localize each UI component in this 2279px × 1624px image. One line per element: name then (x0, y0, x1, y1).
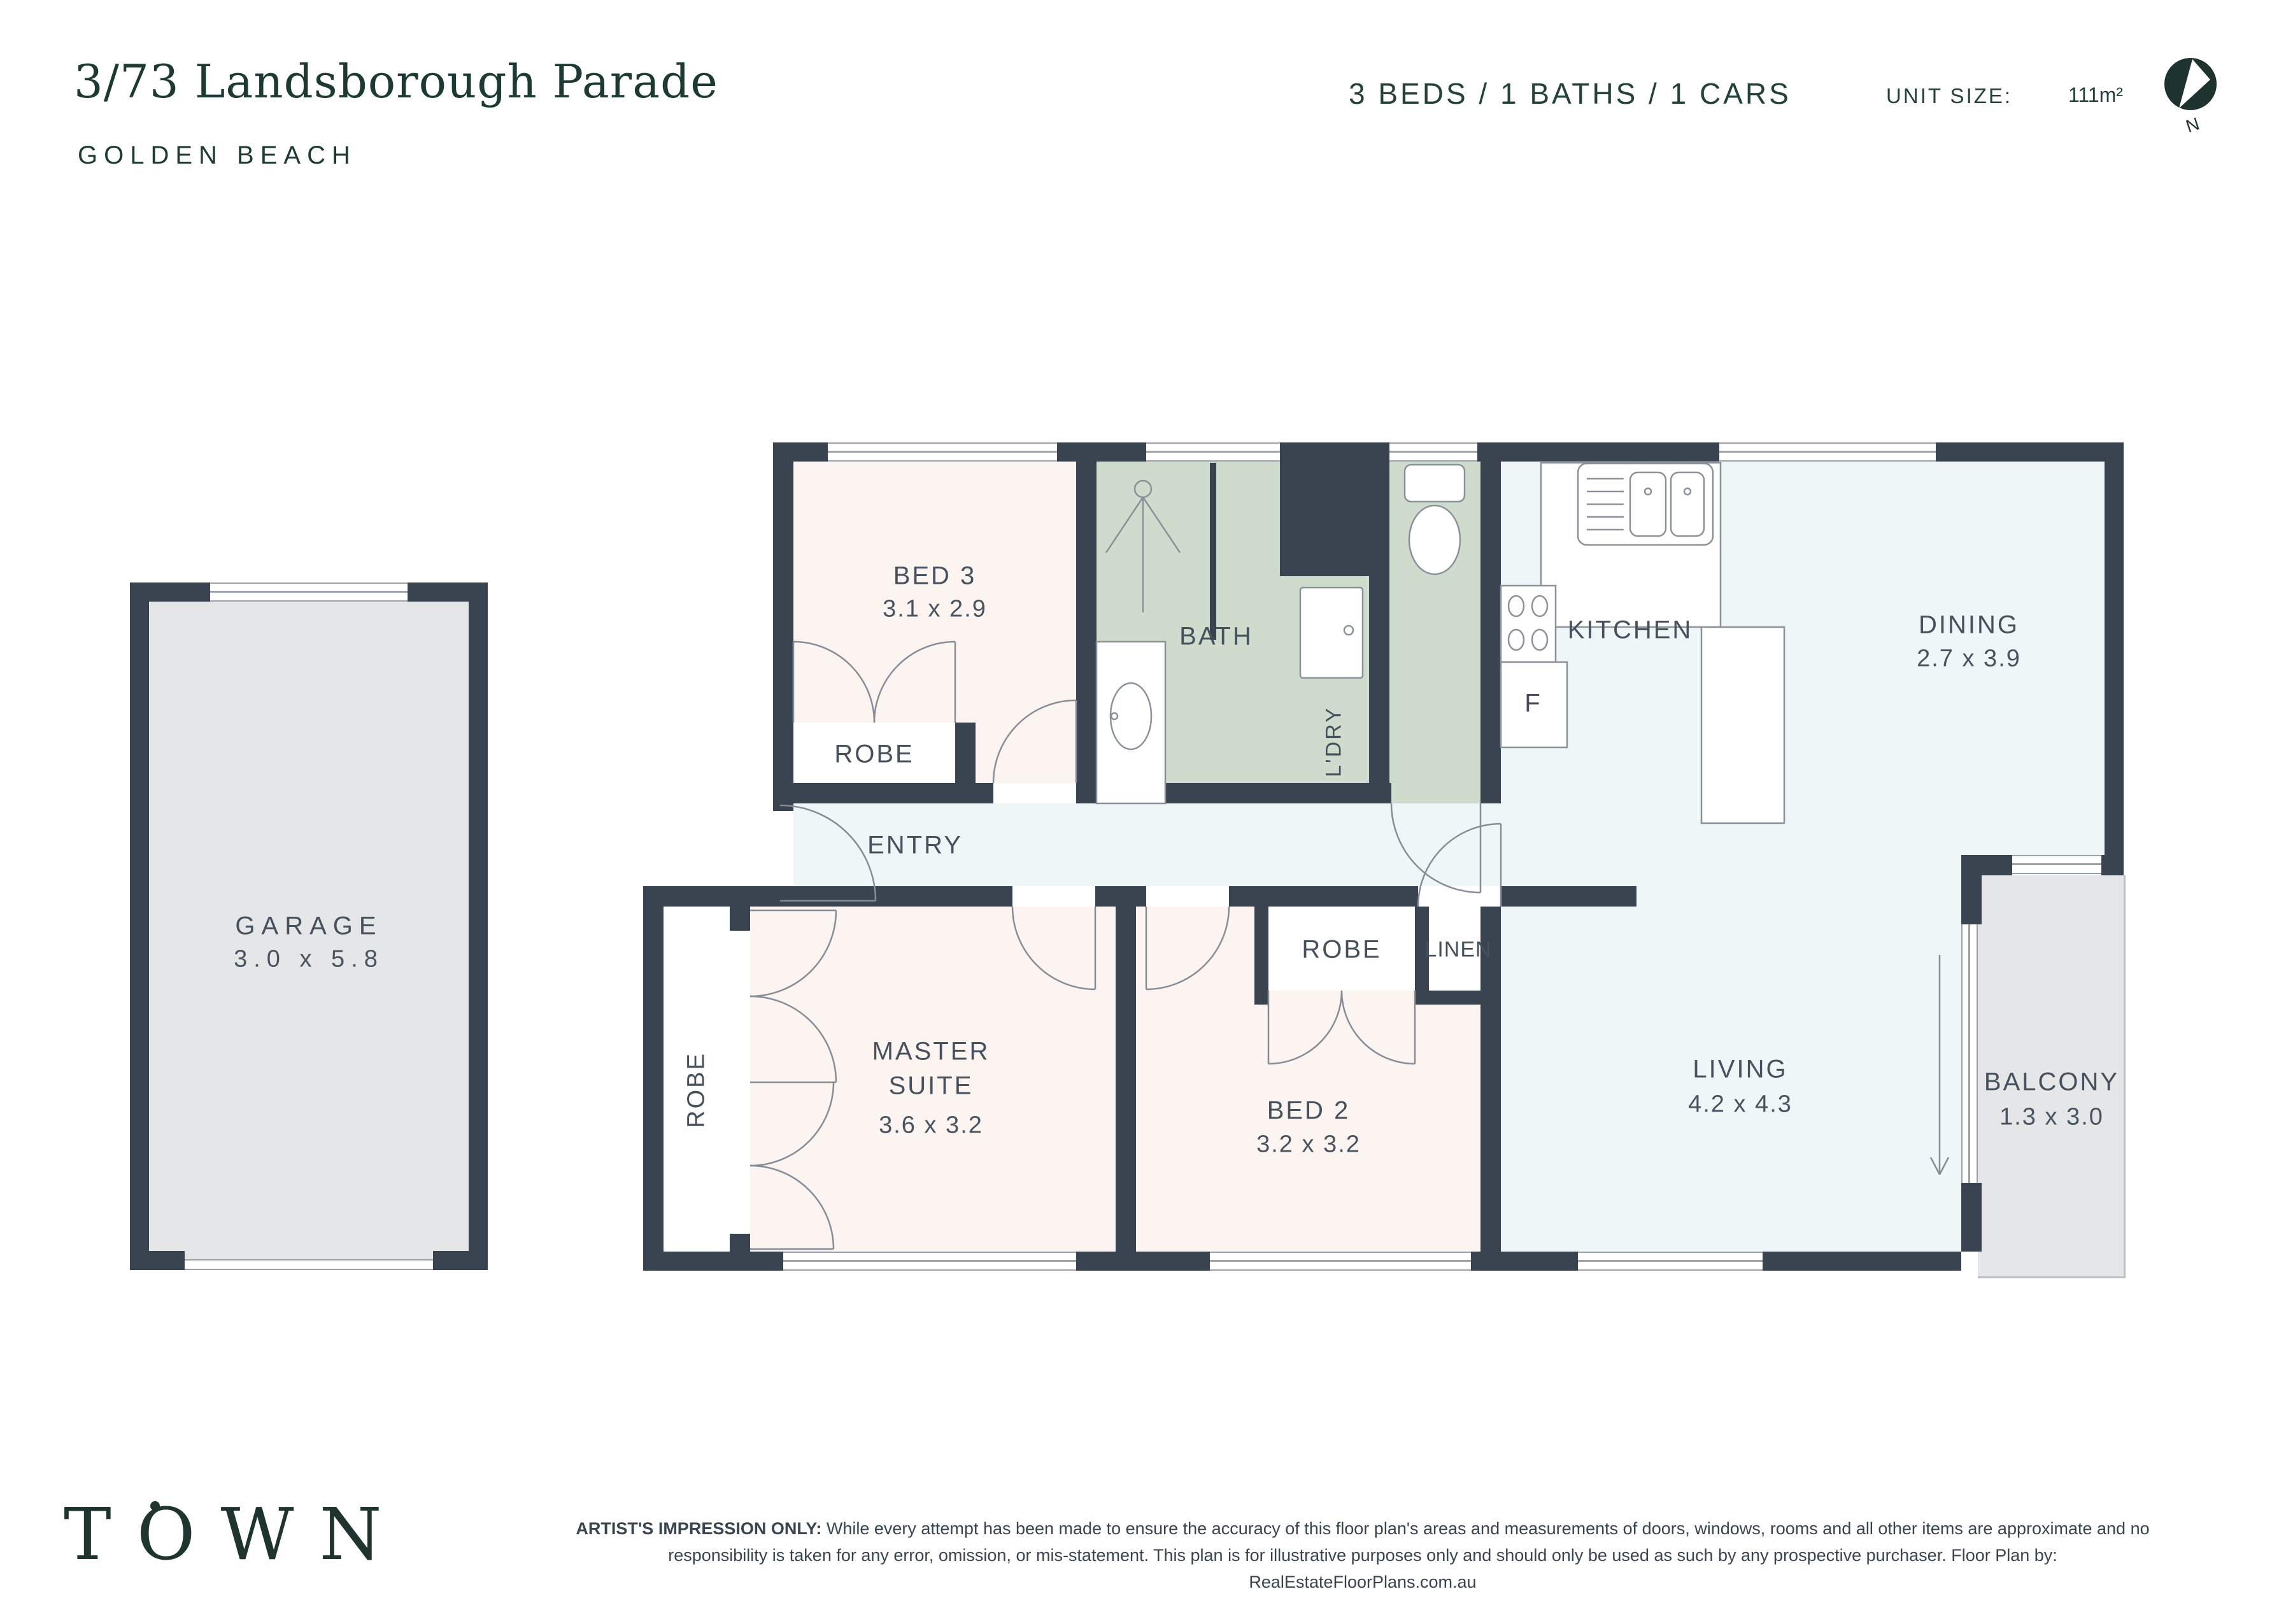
bath-label: BATH (1179, 623, 1253, 651)
balcony-dims: 1.3 x 3.0 (1999, 1104, 2104, 1131)
fridge-label: F (1524, 689, 1542, 718)
kitchen-label: KITCHEN (1568, 616, 1693, 645)
stove (1501, 586, 1556, 662)
town-logo: TOWN (64, 1493, 408, 1576)
master-label-line2: SUITE (889, 1072, 974, 1101)
living-label: LIVING (1693, 1056, 1787, 1084)
town-logo-dot-icon (150, 1501, 160, 1511)
plan-linework (0, 0, 2279, 1624)
kitchen-peninsula (1701, 627, 1784, 823)
entry-label: ENTRY (867, 831, 963, 860)
disclaimer-line2: responsibility is taken for any error, o… (668, 1546, 2057, 1592)
disclaimer-bold: ARTIST'S IMPRESSION ONLY: (576, 1519, 821, 1538)
bed2-label: BED 2 (1267, 1097, 1351, 1126)
garage-label: GARAGE (235, 912, 382, 941)
master-robe-label: ROBE (683, 1052, 711, 1128)
floor-plan-page: 3/73 Landsborough Parade GOLDEN BEACH 3 … (0, 0, 2279, 1624)
master-dims: 3.6 x 3.2 (879, 1112, 983, 1140)
garage-dims: 3.0 x 5.8 (234, 946, 384, 973)
toilet (1405, 465, 1465, 502)
living-dims: 4.2 x 4.3 (1688, 1091, 1793, 1119)
balcony-label: BALCONY (1984, 1068, 2119, 1097)
washing-machine (1300, 588, 1363, 678)
bed2-dims: 3.2 x 3.2 (1256, 1131, 1361, 1159)
dining-label: DINING (1919, 611, 2019, 640)
town-logo-text: TOWN (64, 1493, 408, 1576)
bed2-robe-label: ROBE (1302, 936, 1381, 964)
dining-dims: 2.7 x 3.9 (1917, 646, 2021, 673)
bed3-label: BED 3 (893, 562, 977, 591)
bed3-robe-label: ROBE (834, 740, 914, 769)
disclaimer-line1: While every attempt has been made to ens… (821, 1519, 2149, 1538)
master-label-line1: MASTER (872, 1038, 990, 1066)
bed3-dims: 3.1 x 2.9 (883, 596, 987, 623)
linen-label: LINEN (1424, 938, 1491, 963)
disclaimer: ARTIST'S IMPRESSION ONLY: While every at… (560, 1515, 2165, 1595)
shower-head (1135, 481, 1151, 497)
laundry-label: L'DRY (1322, 706, 1347, 777)
